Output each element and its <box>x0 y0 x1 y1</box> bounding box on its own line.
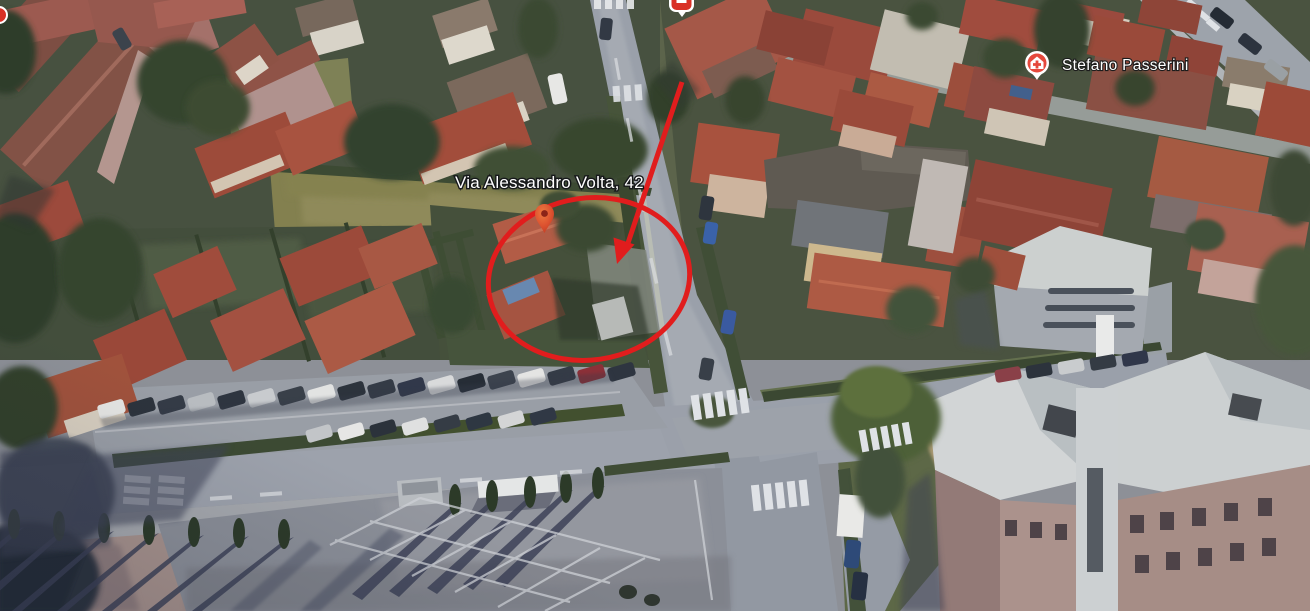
svg-text:Stefano Passerini: Stefano Passerini <box>1062 57 1189 74</box>
svg-text:Via Alessandro Volta, 42: Via Alessandro Volta, 42 <box>455 173 644 192</box>
